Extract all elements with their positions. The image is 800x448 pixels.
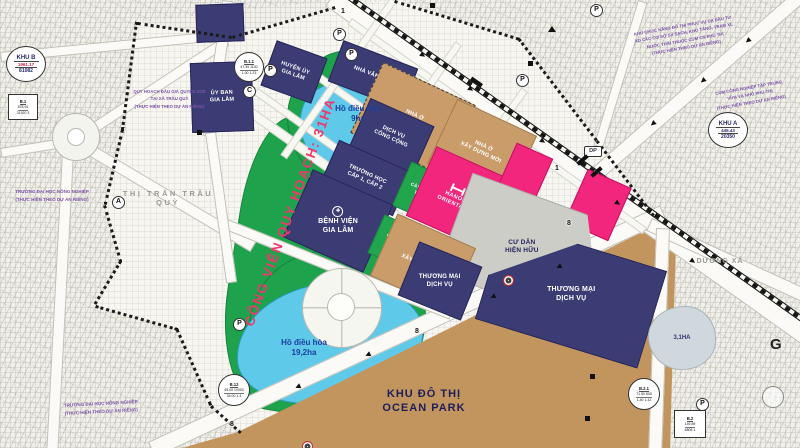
parking-icon: P	[233, 318, 246, 331]
zone-label: THƯƠNG MẠI DỊCH VỤ	[547, 286, 595, 304]
landmark-square-icon	[590, 374, 595, 379]
parking-icon: P	[345, 48, 358, 61]
stat-b2: B.2 149.89 6808 1	[674, 410, 706, 438]
khu-a-oval: KHU A 445.43 20350	[708, 112, 748, 148]
lake-3ha: 3,1HA	[648, 306, 716, 370]
road-number: 1	[341, 8, 345, 15]
stat-row: 6808 1	[685, 428, 696, 433]
landmark-triangle-icon	[548, 26, 556, 32]
zone-label: CƯ DÂN HIỆN HỮU	[505, 239, 539, 255]
ocean-park-label: KHU ĐÔ THỊ OCEAN PARK	[364, 388, 484, 416]
circle-marker	[762, 386, 784, 408]
zone-label: ỦY BAN GIA LÂM	[210, 90, 235, 105]
zone-label: HUYỆN ỦY GIA LÂM	[278, 60, 311, 83]
stat-b12: B.12 45.00 10000 34.00 1.4	[218, 374, 250, 406]
landmark-square-icon	[528, 61, 533, 66]
lake-19ha-label: Hồ điều hòa 19,2ha	[264, 338, 344, 359]
khu-b-name: KHU B	[14, 55, 39, 62]
stat-b21: B.2.1 71.50 805 1.40 1.42	[628, 378, 660, 410]
road-number: 8	[230, 421, 234, 428]
roundabout	[52, 113, 100, 161]
stat-b1: B.1 878.91 31920 3	[8, 94, 38, 120]
stat-row: 34.00 1.4	[227, 394, 242, 399]
landmark-square-icon	[197, 130, 202, 135]
landmark-square-icon	[430, 3, 435, 8]
zone-label: DỊCH VỤ CÔNG CỘNG	[373, 122, 412, 149]
note-dai-hoc-nong-nghiep-1: TRƯỜNG ĐẠI HỌC NÔNG NGHIỆP (THỰC HIỆN TH…	[8, 188, 96, 203]
stat-row: 1.00 1.23	[242, 71, 257, 76]
road-number: 1	[555, 165, 559, 172]
landmark-square-icon	[585, 416, 590, 421]
parking-icon: P	[264, 64, 277, 77]
stat-row: 1.40 1.42	[637, 398, 652, 403]
khu-a-name: KHU A	[716, 121, 741, 128]
letter-marker-a: A	[112, 196, 125, 209]
station-g-label: G	[770, 336, 782, 353]
hospital-cross-icon: ✚	[332, 206, 343, 217]
note-dau-gia: QUY HOẠCH ĐẤU GIÁ QUYỀN SDĐ TẠI XÃ TRÂU …	[132, 88, 207, 110]
khu-a-population: 20350	[721, 134, 735, 140]
parking-icon: P	[590, 4, 603, 17]
duong-xa-label: DƯƠNG XÁ	[690, 258, 750, 265]
khu-b-population: 81082	[19, 68, 33, 74]
planning-map: ỦY BAN GIA LÂM HUYỆN ỦY GIA LÂM NHÀ VĂN …	[0, 0, 800, 448]
parking-icon: P	[516, 74, 529, 87]
thi-tran-trau-quy-label: THỊ TRẤN TRÂU QUỲ	[118, 189, 218, 207]
park-plaza-circle	[302, 268, 382, 348]
zone-label: THƯƠNG MẠI DỊCH VỤ	[419, 273, 461, 288]
zone-label: BỆNH VIỆN GIA LÂM	[318, 218, 358, 236]
stat-b11: B.1.1 47.39 1100 1.00 1.23	[234, 52, 264, 82]
station-icon	[503, 275, 514, 286]
parking-icon: P	[333, 28, 346, 41]
lake-9ha-label: Hồ điều hòa 9ha	[318, 104, 398, 125]
parking-icon: P	[696, 398, 709, 411]
zone-label-wrap: ✚ BỆNH VIỆN GIA LÂM	[318, 206, 358, 236]
road-number: 8	[415, 328, 419, 335]
station-icon	[302, 441, 313, 448]
lake-label: 3,1HA	[673, 335, 690, 341]
road-number: 8	[567, 220, 571, 227]
stat-row: 31920 3	[17, 111, 30, 116]
khu-b-oval: KHU B 1961.17 81082	[6, 46, 46, 82]
letter-marker-c: C	[243, 85, 256, 98]
